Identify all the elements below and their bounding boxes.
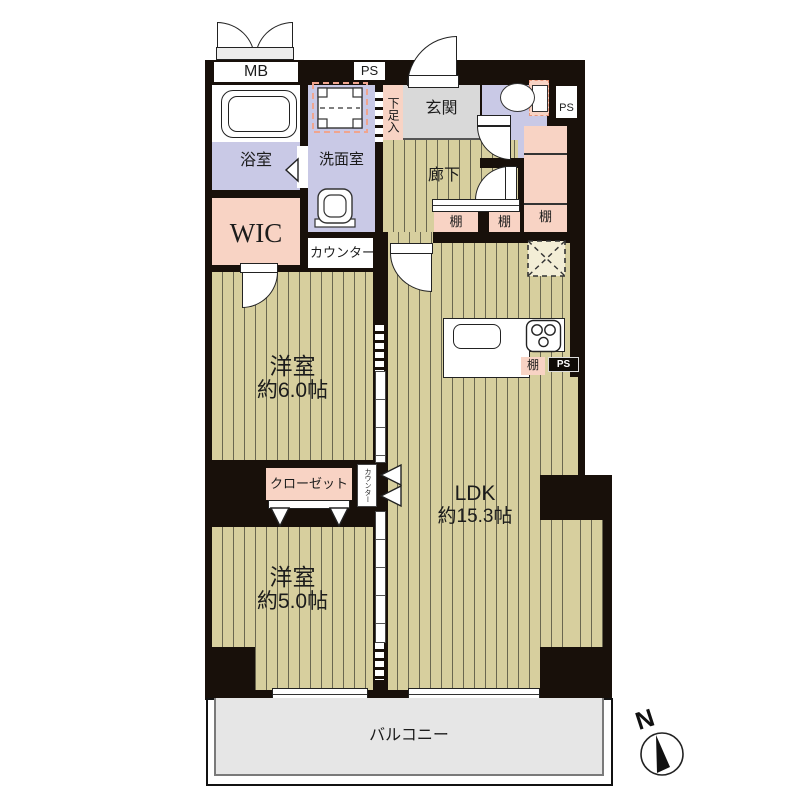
ldk-name: LDK [455,482,496,506]
mb-door-sill [216,47,294,60]
cabinet-divider-2 [524,203,567,205]
shelf-1: 棚 [434,212,478,232]
balcony-label: バルコニー [369,727,449,745]
closet-label: クローゼット [270,477,348,492]
ps-label-top: PS [361,64,378,79]
bathtub-inner [228,96,290,132]
shelf-1-label: 棚 [449,215,462,230]
counter-bifold-icon [377,463,403,509]
mb-label: MB [244,63,268,81]
shoe-cabinet-label: 下足入 [385,97,402,133]
compass-icon: N [628,696,702,792]
entrance-text: 玄関 [425,100,457,118]
toilet-icon [500,83,535,112]
wic-text: WIC [230,218,282,249]
bedroom1-label: 洋室 約6.0帖 [212,348,373,408]
closet-bifold-icon [266,506,352,529]
ps-box-right: PS [556,86,577,118]
ldk-floor [387,243,570,690]
entrance-door-leaf [408,75,459,88]
refrigerator-icon [526,239,568,279]
wic-label: WIC [212,218,300,250]
counter-nook: カウンター [308,238,377,268]
ldk-floor-right-strip [570,377,578,475]
shelf-gap-wall [478,212,489,232]
counter-label: カウンター [310,246,375,261]
hall-door-leaf [505,166,517,200]
ldk-size: 約15.3帖 [438,506,513,528]
entrance-label: 玄関 [403,96,480,122]
bedroom1-door-leaf [240,263,278,273]
shelf-3-label: 棚 [539,210,552,225]
bedroom2-corner-wall [205,647,255,700]
toilet-door-leaf [477,115,511,126]
ps-label-box-top: PS [354,62,385,80]
counter-mini-box: カウンター [357,464,377,507]
bedroom2-name: 洋室 [270,564,316,590]
kitchen-shelf: 棚 [521,357,545,375]
partition-slider-1 [375,371,386,463]
bath-door-icon [284,157,300,183]
bedroom1-size: 約6.0帖 [257,379,328,403]
mb-label-box: MB [214,62,298,82]
shelf-2: 棚 [489,212,520,232]
washroom-text: 洗面室 [319,151,364,168]
bath-text: 浴室 [240,152,272,170]
compass-n-label: N [632,704,658,736]
kitchen-ps-box: PS [548,357,579,372]
ldk-label: LDK 約15.3帖 [395,480,555,530]
cabinet-shelf-label-box: 棚 [524,206,567,228]
shoe-cabinet: 下足入 [383,85,404,145]
washroom-label: 洗面室 [308,150,375,170]
bedroom1-name: 洋室 [270,353,316,379]
shelf-4-label: 棚 [527,359,539,373]
counter-mini-label: カウンター [362,468,372,503]
kitchen-counter-bottom [443,351,530,378]
washing-machine-icon [311,81,371,136]
washbasin-icon [312,187,358,229]
ldk-bay-floor [570,520,603,647]
partition-dashed-2 [375,643,384,680]
kitchen-sink-icon [453,324,501,349]
stove-icon [525,319,563,353]
shelf-2-label: 棚 [498,215,511,230]
ps-label-kitchen: PS [557,359,570,371]
partition-dashed-1 [375,325,384,371]
shelf-counter [432,199,520,212]
closet: クローゼット [266,468,352,500]
floor-plan: MB PS 浴室 WIC 洗面室 カウンター 下足入 玄関 PS [0,0,800,800]
partition-slider-2 [375,511,386,643]
bedroom2-size: 約5.0帖 [257,590,328,614]
corridor-label: 廊下 [400,164,488,188]
ps-label-right: PS [559,102,574,115]
bedroom2-label: 洋室 約5.0帖 [212,561,373,617]
corridor-text: 廊下 [428,167,460,185]
cabinet-divider-1 [524,153,567,155]
ldk-bottom-right-wall [540,647,612,698]
balcony-floor: バルコニー [214,698,604,776]
ldk-door-leaf [390,243,433,254]
